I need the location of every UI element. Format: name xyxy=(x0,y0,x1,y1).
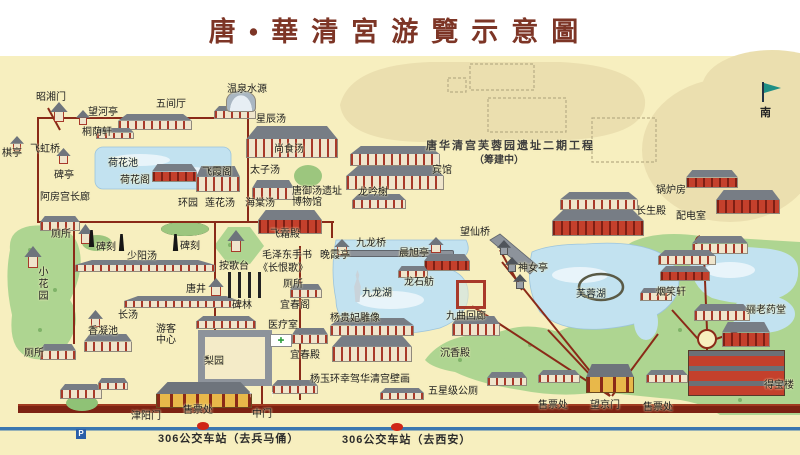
labels-layer: 昭湘门望河亭五间厅温泉水源星辰汤棋亭飞虹桥桐荫轩碑亭荷花池荷花阁飞霞阁阿房宫长廊… xyxy=(0,0,800,455)
map-label-hotel: 宾馆 xyxy=(432,165,452,176)
map-label-toilet-3: 厕所 xyxy=(24,348,44,359)
map-label-tongyin-xuan: 桐荫轩 xyxy=(82,127,112,138)
map-label-debao-tower: 得宝楼 xyxy=(764,380,794,391)
compass-label: 南 xyxy=(760,104,771,120)
map-label-shaoyang-bath: 少阳汤 xyxy=(127,251,157,262)
map-label-mao-calligraphy: 毛泽东手书 xyxy=(262,250,312,261)
map-label-wangxian-bridge: 望仙桥 xyxy=(460,227,490,238)
map-label-stele-forest: 碑林 xyxy=(232,300,252,311)
map-label-bei-pavilion: 碑亭 xyxy=(54,170,74,181)
map-label-wujian-hall: 五间厅 xyxy=(156,99,186,110)
map-label-lotus-pond: 荷花池 xyxy=(108,158,138,169)
map-label-zhaoxiang-gate: 昭湘门 xyxy=(36,92,66,103)
map-label-mural: 杨玉环幸驾华清宫壁画 xyxy=(310,374,410,385)
map-label-stele-1: 碑刻 xyxy=(96,242,116,253)
map-label-qi-pavilion: 棋亭 xyxy=(2,148,22,159)
map-label-yichun-pavilion: 宜春阁 xyxy=(280,300,310,311)
map-label-chang-bath: 长汤 xyxy=(118,310,138,321)
map-label-feishuang-hall: 飞霜殿 xyxy=(270,229,300,240)
map-label-huan-garden: 环园 xyxy=(178,198,198,209)
bus-stop-label-1: 306公交车站（去兵马俑） xyxy=(158,434,299,445)
map-label-tang-well: 唐井 xyxy=(186,284,206,295)
bus-stop-dot-icon xyxy=(197,422,209,430)
map-label-efang-corridor: 阿房宫长廊 xyxy=(40,192,90,203)
map-label-changsheng-hall: 长生殿 xyxy=(636,206,666,217)
map-label-lianhua-bath: 莲花汤 xyxy=(205,198,235,209)
map-label-jiulong-bridge: 九龙桥 xyxy=(356,238,386,249)
map-label-taizi-bath: 太子汤 xyxy=(250,165,280,176)
map-label-chenxu-pavilion: 晨旭亭 xyxy=(399,248,429,259)
map-label-lotus-pavilion: 荷花阁 xyxy=(120,175,150,186)
map-label-small-garden: 小花园 xyxy=(36,266,47,302)
map-label-xiangning-pond: 香凝池 xyxy=(88,326,118,337)
map-label-five-star-toilet: 五星级公厕 xyxy=(428,386,478,397)
map-label-phase2-project: 唐华清宫芙蓉园遗址二期工程 xyxy=(426,141,595,152)
map-label-middle-gate: 中门 xyxy=(252,409,272,420)
map-label-jiuqu-corridor: 九曲回廊 xyxy=(446,311,486,322)
map-label-feihong-bridge: 飞虹桥 xyxy=(30,144,60,155)
map-label-boiler-room: 锅炉房 xyxy=(656,185,686,196)
map-label-gate-arrow-2: ↑ xyxy=(270,389,275,400)
map-label-medical-room: 医疗室 xyxy=(268,320,298,331)
map-label-toilet-1: 厕所 xyxy=(51,229,71,240)
map-label-yanxiao-xuan: 烟笑轩 xyxy=(656,287,686,298)
map-label-chenxiang-hall: 沉香殿 xyxy=(440,348,470,359)
map-label-ticket-office-3: 售票处 xyxy=(643,402,673,413)
map-label-tang-bath-museum: 唐御汤遗址 博物馆 xyxy=(292,186,342,208)
map-label-feixia-pavilion: 飞霞阁 xyxy=(202,167,232,178)
map-title: 唐•華清宮游覽示意圖 xyxy=(0,10,800,49)
map-label-furong-lake: 芙蓉湖 xyxy=(576,289,606,300)
map-label-jiulong-lake: 九龙湖 xyxy=(362,288,392,299)
map-label-wanxia-pavilion: 晚霞亭 xyxy=(320,250,350,261)
map-label-longyin-xie: 龙吟榭 xyxy=(358,187,388,198)
map-label-yichun-hall: 宜春殿 xyxy=(290,350,320,361)
map-label-power-room: 配电室 xyxy=(676,211,706,222)
map-label-haitang-bath: 海棠汤 xyxy=(245,198,275,209)
bus-stop-label-2: 306公交车站（去西安） xyxy=(342,435,471,446)
map-label-ticket-office-1: 售票处 xyxy=(183,405,213,416)
map-label-lilao-pharmacy: 骊老药堂 xyxy=(746,305,786,316)
map-label-ticket-office-2: 售票处 xyxy=(538,400,568,411)
map-label-wangjing-gate: 望京门 xyxy=(590,400,620,411)
huaqing-palace-map-page: { "title": "唐•華清宮游覽示意圖", "compass": { "l… xyxy=(0,0,800,455)
map-label-wanghe-pavilion: 望河亭 xyxy=(88,107,118,118)
map-label-longshi-boat: 龙石舫 xyxy=(404,277,434,288)
map-label-yangguifei-statue: 杨贵妃雕像 xyxy=(330,313,380,324)
map-label-shangshi-bath: 尚食汤 xyxy=(274,144,304,155)
map-label-ange-terrace: 按歌台 xyxy=(219,261,249,272)
parking-icon: P xyxy=(76,429,86,439)
map-label-toilet-2: 厕所 xyxy=(283,279,303,290)
map-label-stele-2: 碑刻 xyxy=(180,241,200,252)
map-label-jinyang-gate: 津阳门 xyxy=(131,411,161,422)
south-flag-icon xyxy=(764,83,781,93)
map-label-changhen-ge: 《长恨歌》 xyxy=(258,263,308,274)
map-label-pear-garden: 梨园 xyxy=(204,356,224,367)
map-label-visitor-center: 游客 中心 xyxy=(156,324,176,346)
map-label-phase2-note: （筹建中） xyxy=(474,155,524,166)
map-label-xingchen-bath: 星辰汤 xyxy=(256,114,286,125)
map-label-shennv-pavilion: 神女亭 xyxy=(518,263,548,274)
map-label-hot-spring-source: 温泉水源 xyxy=(227,84,267,95)
map-label-gate-arrow-1: ↑ xyxy=(248,389,253,400)
bus-stop-dot-icon xyxy=(391,423,403,431)
